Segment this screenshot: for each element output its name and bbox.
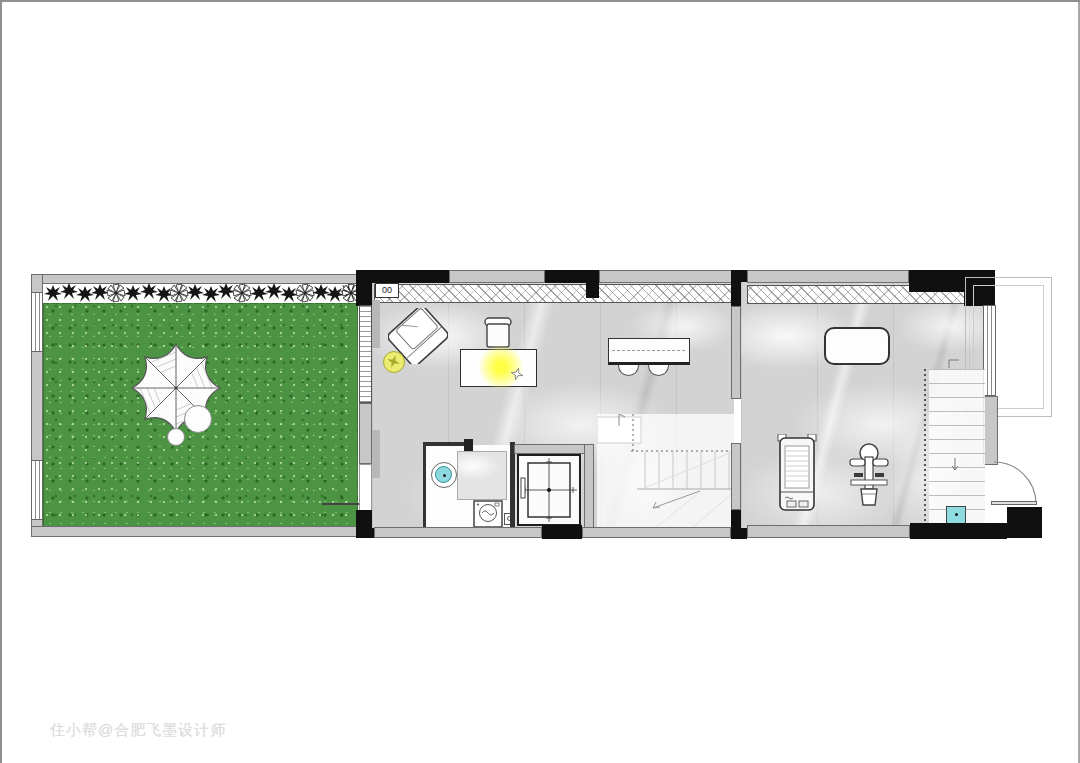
bathroom-wall-right [510,442,515,532]
exercise-machine-icon [848,442,890,508]
garden-interior-wall [359,403,372,464]
top-wall-gray-right [747,270,909,283]
garden-window-left-1 [31,292,43,352]
watermark: 住小帮@合肥飞墨设计师 [50,721,226,740]
bar-table-icon [608,338,690,365]
treadmill-icon [777,434,817,514]
pouf-star [384,352,403,371]
stairs-icon [597,414,734,527]
gym-mat-icon [824,327,890,365]
top-wall-black-1 [372,270,449,283]
bottom-wall-black-1 [542,525,582,539]
plant-row [43,282,357,304]
elevator-wall-top [514,444,594,454]
bottom-wall-gray-1 [374,527,542,538]
garden-door-leaf [359,464,372,512]
floor-plan-page: 00 [0,0,1080,763]
top-cabinet-strip-mid [374,284,732,303]
garden-stool-icon [167,428,185,446]
stairs-railing [924,369,926,525]
shoe-step-dot [955,513,958,516]
corner-box-label: 00 [375,283,399,298]
sink-drain-dot [443,474,446,477]
sink-basin [435,466,452,483]
top-wall-column-drop [586,280,599,298]
garden-table-icon [184,405,212,433]
sink-icon [431,462,457,488]
stairs-right-marks [929,354,985,530]
bottom-wall-black-2 [910,523,1007,539]
pouf-icon [383,351,405,373]
garden-wall-bottom [31,526,359,537]
bottom-wall-gray-3 [747,525,910,538]
bathroom-wall-left [423,443,426,532]
entry-door-leaf [991,501,1037,505]
wall-tab-1 [372,300,380,348]
wall-tab-2 [372,430,380,478]
gym-wall-pier [983,396,998,465]
bottom-wall-gray-2 [582,527,731,538]
divider-wall-lower [731,443,741,510]
top-wall-gray-2 [599,270,734,283]
washing-machine-icon [473,500,503,528]
stairs-middle-lines [597,414,734,527]
bar-table-centerline [612,350,685,351]
elevator-wall-right [584,444,594,528]
garden-window-left-2 [31,460,43,520]
top-wall-gray-1 [449,270,545,283]
sketch-star-icon [509,366,525,382]
bathroom-counter [457,451,507,500]
garden-interior-window [359,305,372,403]
divider-wall-upper [731,306,741,399]
elevator-icon [517,454,581,526]
entry-stoop-wall [1007,507,1042,538]
